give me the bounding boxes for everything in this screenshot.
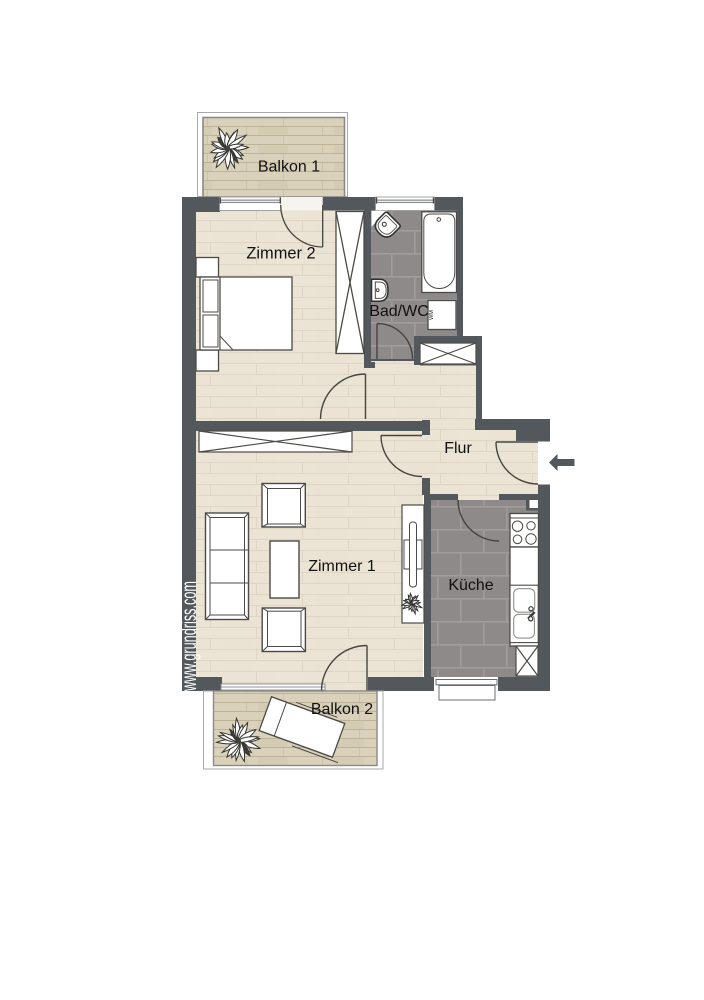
- svg-text:Küche: Küche: [448, 577, 493, 594]
- svg-text:Balkon 2: Balkon 2: [311, 701, 373, 718]
- svg-text:Flur: Flur: [444, 440, 472, 457]
- svg-text:Balkon 1: Balkon 1: [258, 159, 320, 176]
- svg-text:WM: WM: [429, 310, 435, 320]
- svg-text:Zimmer 1: Zimmer 1: [308, 558, 376, 575]
- svg-text:Bad/WC: Bad/WC: [369, 303, 429, 320]
- svg-text:www.grundriss.com: www.grundriss.com: [177, 581, 201, 692]
- svg-text:Zimmer 2: Zimmer 2: [246, 245, 315, 263]
